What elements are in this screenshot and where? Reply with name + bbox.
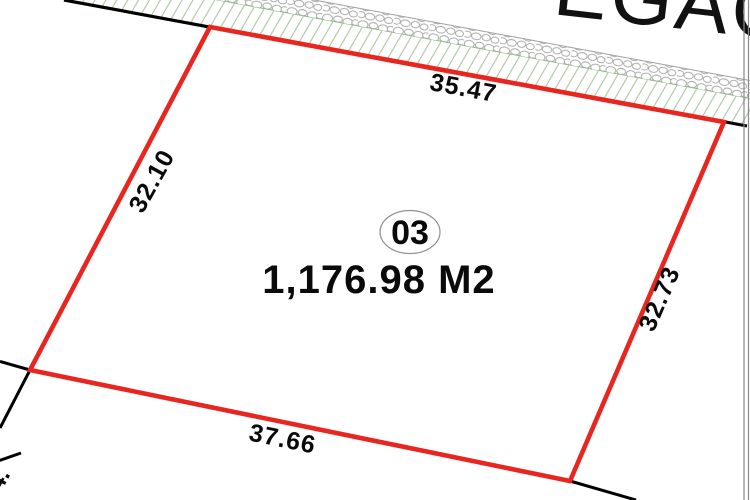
adjacent-boundary-lower-left	[0, 370, 30, 428]
survey-plat-drawing: EGAC 35.47 32.10 32.73 37.66 03 1,176.98…	[0, 0, 750, 500]
adjacent-boundary-bottom-right	[570, 481, 636, 500]
lot-area-label: 1,176.98 M2	[262, 258, 495, 302]
plat-canvas: EGAC 35.47 32.10 32.73 37.66 03 1,176.98…	[0, 0, 750, 500]
adjacent-boundary-upper-left	[0, 362, 30, 371]
lot-number: 03	[391, 214, 429, 252]
clipped-dimension-fragment: 4.	[0, 464, 16, 494]
clipped-corner-fragment: 4.	[0, 453, 21, 495]
wall-double-line	[744, 0, 749, 500]
